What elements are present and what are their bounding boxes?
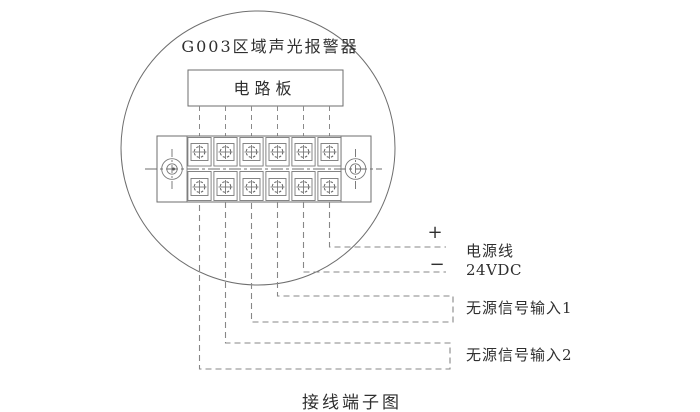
power-minus-wire xyxy=(304,202,447,272)
signal-input-1-label: 无源信号输入1 xyxy=(466,299,573,317)
signal-input-1-wire xyxy=(252,202,454,322)
signal-input-2-wire xyxy=(200,202,451,369)
power-line-label: 电源线 xyxy=(466,242,514,260)
device-label: G003区域声光报警器 xyxy=(181,37,358,56)
terminal-block xyxy=(145,136,382,202)
wiring-diagram: G003区域声光报警器 电路板 xyxy=(0,0,700,412)
plus-sign: + xyxy=(427,222,442,243)
caption: 接线端子图 xyxy=(302,393,402,412)
circuit-board-label: 电路板 xyxy=(233,79,296,98)
diagram-canvas: G003区域声光报警器 电路板 xyxy=(0,0,700,412)
signal-input-2-label: 无源信号输入2 xyxy=(466,346,573,364)
external-wires xyxy=(200,202,454,369)
right-mounting-hole xyxy=(345,149,366,190)
power-voltage-label: 24VDC xyxy=(466,261,522,279)
board-to-terminal-wires xyxy=(200,106,330,136)
left-mounting-hole xyxy=(162,149,183,190)
minus-sign: − xyxy=(429,254,444,275)
